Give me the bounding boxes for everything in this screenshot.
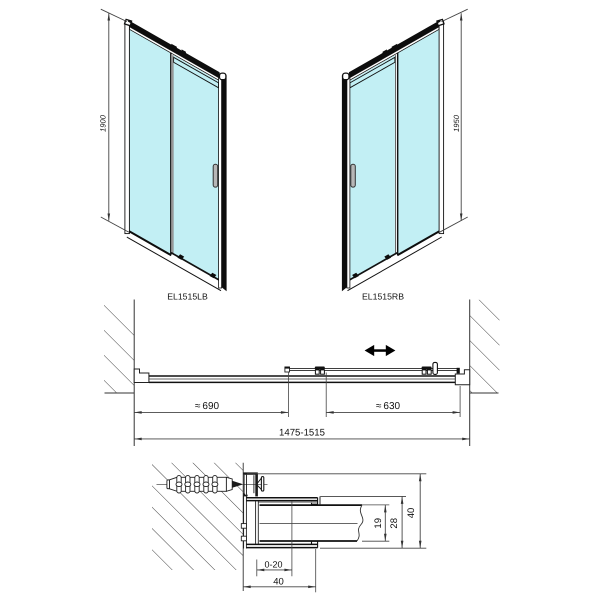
svg-text:1475-1515: 1475-1515 <box>279 428 325 439</box>
svg-text:40: 40 <box>406 508 417 519</box>
svg-text:19: 19 <box>373 518 384 529</box>
svg-text:≈ 630: ≈ 630 <box>376 401 401 412</box>
svg-text:EL1515LB: EL1515LB <box>167 292 208 302</box>
svg-text:1900: 1900 <box>98 114 107 132</box>
svg-text:EL1515RB: EL1515RB <box>362 292 404 302</box>
svg-text:1950: 1950 <box>452 114 461 132</box>
svg-text:40: 40 <box>273 577 284 588</box>
svg-text:0-20: 0-20 <box>264 560 282 570</box>
svg-text:28: 28 <box>389 518 400 529</box>
svg-text:≈ 690: ≈ 690 <box>195 401 220 412</box>
